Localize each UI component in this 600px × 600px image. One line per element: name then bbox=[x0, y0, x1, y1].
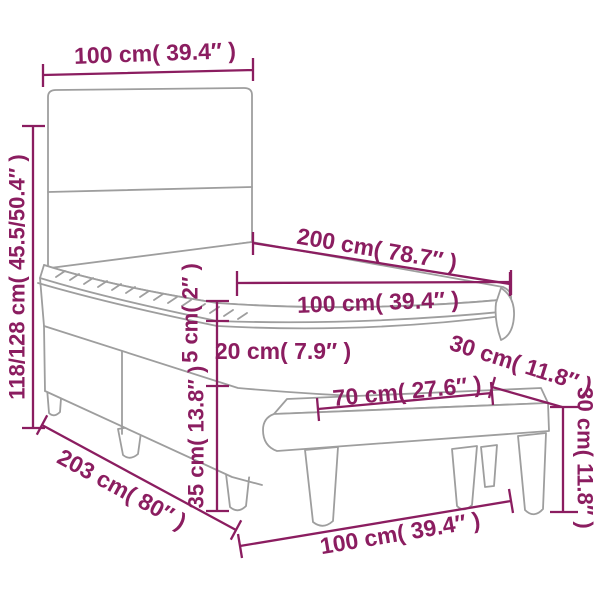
headboard bbox=[48, 88, 252, 270]
label-base-height: 35 cm( 13.8″ ) bbox=[184, 366, 209, 509]
box-spring-left-edge bbox=[40, 278, 45, 391]
label-mattress-thickness: 20 cm( 7.9″ ) bbox=[215, 338, 351, 364]
bed-with-bench-diagram: 100 cm( 39.4″ ) 118/128 cm( 45.5/50.4″ )… bbox=[0, 0, 600, 600]
bench-back-leg-sliver bbox=[481, 445, 497, 487]
bench-front-leg-left bbox=[305, 447, 338, 526]
label-front-width: 100 cm( 39.4″ ) bbox=[318, 507, 482, 559]
bench-back-leg bbox=[452, 446, 477, 509]
label-bed-height: 118/128 cm( 45.5/50.4″ ) bbox=[5, 154, 30, 399]
label-headboard-width: 100 cm( 39.4″ ) bbox=[74, 37, 237, 69]
label-bench-height: 30 cm( 11.8″ ) bbox=[573, 387, 598, 528]
dimension-diagram: 100 cm( 39.4″ ) 118/128 cm( 45.5/50.4″ )… bbox=[0, 0, 600, 600]
label-diagonal-length: 203 cm( 80″ ) bbox=[53, 444, 191, 535]
label-topper-thickness: 5 cm( 2″ ) bbox=[178, 263, 203, 363]
bench-front-leg-right bbox=[518, 433, 546, 514]
